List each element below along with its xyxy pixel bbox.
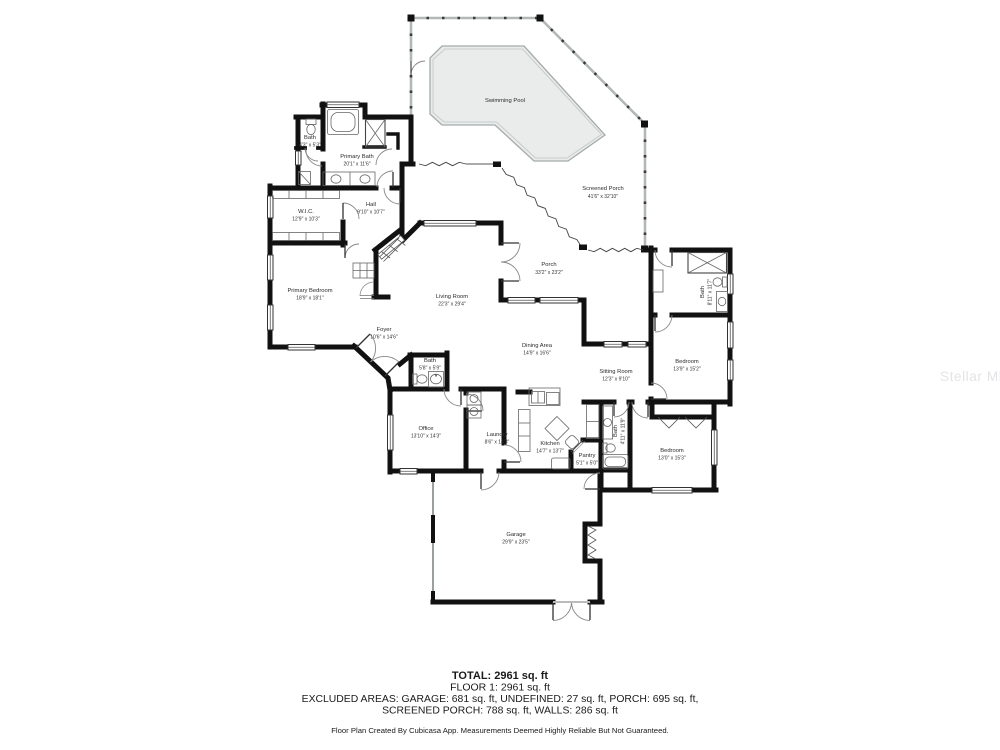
svg-text:Bath: Bath [424,358,436,364]
svg-text:EXCLUDED AREAS: GARAGE: 681 sq: EXCLUDED AREAS: GARAGE: 681 sq. ft, UNDE… [302,694,699,705]
svg-text:8'6" x 14'3": 8'6" x 14'3" [485,440,510,446]
svg-text:5'8" x 5'9": 5'8" x 5'9" [419,366,441,372]
svg-text:Stellar MLS: Stellar MLS [940,369,1000,384]
svg-text:Dining Area: Dining Area [522,343,553,349]
svg-text:20'1" x 11'6": 20'1" x 11'6" [343,162,370,168]
svg-text:12'3" x 9'10": 12'3" x 9'10" [602,377,630,383]
svg-text:TOTAL: 2961 sq. ft: TOTAL: 2961 sq. ft [452,670,549,682]
svg-text:Bath: Bath [613,425,619,437]
svg-text:13'9" x 15'2": 13'9" x 15'2" [673,367,701,373]
svg-text:Pantry: Pantry [579,453,596,459]
svg-text:Garage: Garage [506,532,525,538]
svg-text:14'9" x 16'6": 14'9" x 16'6" [523,351,551,357]
svg-text:12'9" x 10'3": 12'9" x 10'3" [292,217,320,223]
svg-text:5'1" x 5'0": 5'1" x 5'0" [576,461,598,467]
svg-text:13'10" x 14'3": 13'10" x 14'3" [411,434,441,440]
svg-text:Kitchen: Kitchen [540,441,559,447]
svg-text:W.I.C.: W.I.C. [298,209,314,215]
svg-text:8'11" x 11'7": 8'11" x 11'7" [708,278,714,305]
svg-text:41'6" x 32'10": 41'6" x 32'10" [588,194,618,200]
svg-text:13'0" x 15'3": 13'0" x 15'3" [658,456,686,462]
svg-text:14'7" x 13'7": 14'7" x 13'7" [536,449,564,455]
svg-text:Screened Porch: Screened Porch [582,186,624,192]
svg-text:Bedroom: Bedroom [675,359,699,365]
svg-text:Porch: Porch [541,262,556,268]
svg-text:18'9" x 18'1": 18'9" x 18'1" [296,296,324,302]
svg-text:22'3" x 29'4": 22'3" x 29'4" [438,302,466,308]
svg-text:Sitting Room: Sitting Room [599,369,632,375]
svg-text:33'2" x 23'2": 33'2" x 23'2" [535,270,563,276]
svg-text:Bath: Bath [700,286,706,298]
svg-text:Living Room: Living Room [436,294,468,300]
svg-text:Floor Plan Created By Cubicasa: Floor Plan Created By Cubicasa App. Meas… [331,726,669,735]
svg-text:Bedroom: Bedroom [660,448,684,454]
svg-text:Primary Bath: Primary Bath [340,154,374,160]
svg-text:Swimming Pool: Swimming Pool [485,98,525,104]
svg-text:4'3" x 5'3": 4'3" x 5'3" [299,143,321,149]
svg-text:4'11" x 11'9": 4'11" x 11'9" [621,417,627,444]
svg-text:29'9" x 23'5": 29'9" x 23'5" [502,540,530,546]
svg-text:Foyer: Foyer [377,327,392,333]
svg-text:Hall: Hall [366,202,376,208]
svg-text:Primary Bedroom: Primary Bedroom [287,288,332,294]
svg-text:Bath: Bath [304,135,316,141]
svg-text:FLOOR 1: 2961 sq. ft: FLOOR 1: 2961 sq. ft [450,682,550,694]
svg-text:SCREENED PORCH: 788 sq. ft, WA: SCREENED PORCH: 788 sq. ft, WALLS: 286 s… [382,706,618,717]
svg-text:9'10" x 10'7": 9'10" x 10'7" [357,210,385,216]
svg-text:10'6" x 14'6": 10'6" x 14'6" [370,335,398,341]
svg-text:Office: Office [418,426,433,432]
svg-text:Laundry: Laundry [487,432,508,438]
